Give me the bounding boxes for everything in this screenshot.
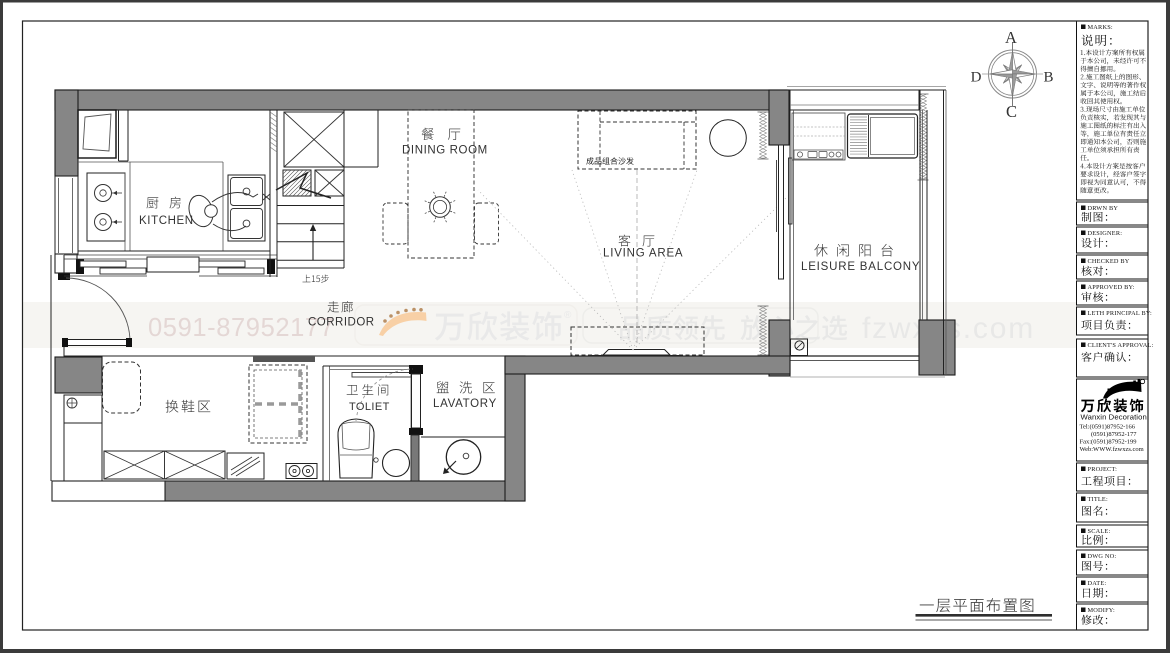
svg-text:TITLE:: TITLE: — [1088, 496, 1108, 503]
svg-text:LAVATORY: LAVATORY — [433, 398, 497, 410]
svg-text:CLIENT'S APPROVAL:: CLIENT'S APPROVAL: — [1088, 342, 1154, 349]
svg-text:SCALE:: SCALE: — [1088, 528, 1111, 535]
svg-text:DATE:: DATE: — [1088, 580, 1107, 587]
svg-text:DRWN BY: DRWN BY — [1088, 205, 1119, 212]
svg-text:CORRIDOR: CORRIDOR — [308, 317, 375, 329]
svg-text:Tel:(0591)87952-166: Tel:(0591)87952-166 — [1080, 424, 1136, 431]
svg-text:0591-87952177: 0591-87952177 — [148, 314, 334, 342]
svg-text:DINING ROOM: DINING ROOM — [402, 145, 488, 157]
svg-text:B: B — [1043, 70, 1053, 86]
svg-text:A: A — [1005, 28, 1017, 47]
svg-text:Fax:(0591)87952-199: Fax:(0591)87952-199 — [1080, 439, 1137, 446]
svg-text:DESIGNER:: DESIGNER: — [1088, 230, 1123, 237]
svg-text:DWG NO:: DWG NO: — [1088, 553, 1117, 560]
svg-text:LIVING AREA: LIVING AREA — [603, 248, 683, 260]
svg-text:CHECKED BY: CHECKED BY — [1088, 258, 1130, 265]
svg-text:LETH PRINCIPAL BY:: LETH PRINCIPAL BY: — [1088, 310, 1153, 317]
svg-text:LEISURE BALCONY: LEISURE BALCONY — [801, 261, 920, 273]
svg-text:C: C — [1006, 102, 1017, 121]
svg-text:PROJECT:: PROJECT: — [1088, 466, 1118, 473]
svg-text:APPROVED BY:: APPROVED BY: — [1088, 284, 1135, 291]
svg-text:®: ® — [564, 310, 572, 321]
svg-text:KITCHEN: KITCHEN — [139, 215, 194, 227]
svg-text:Web:WWW.fzwxzs.com: Web:WWW.fzwxzs.com — [1080, 446, 1144, 453]
svg-text:MODIFY:: MODIFY: — [1088, 607, 1115, 614]
svg-text:MARKS:: MARKS: — [1088, 24, 1113, 31]
svg-text:Wanxin Decoration: Wanxin Decoration — [1081, 413, 1147, 422]
svg-text:(0591)87952-177: (0591)87952-177 — [1091, 431, 1137, 438]
svg-text:TOLIET: TOLIET — [349, 401, 390, 413]
svg-text:D: D — [971, 70, 982, 86]
